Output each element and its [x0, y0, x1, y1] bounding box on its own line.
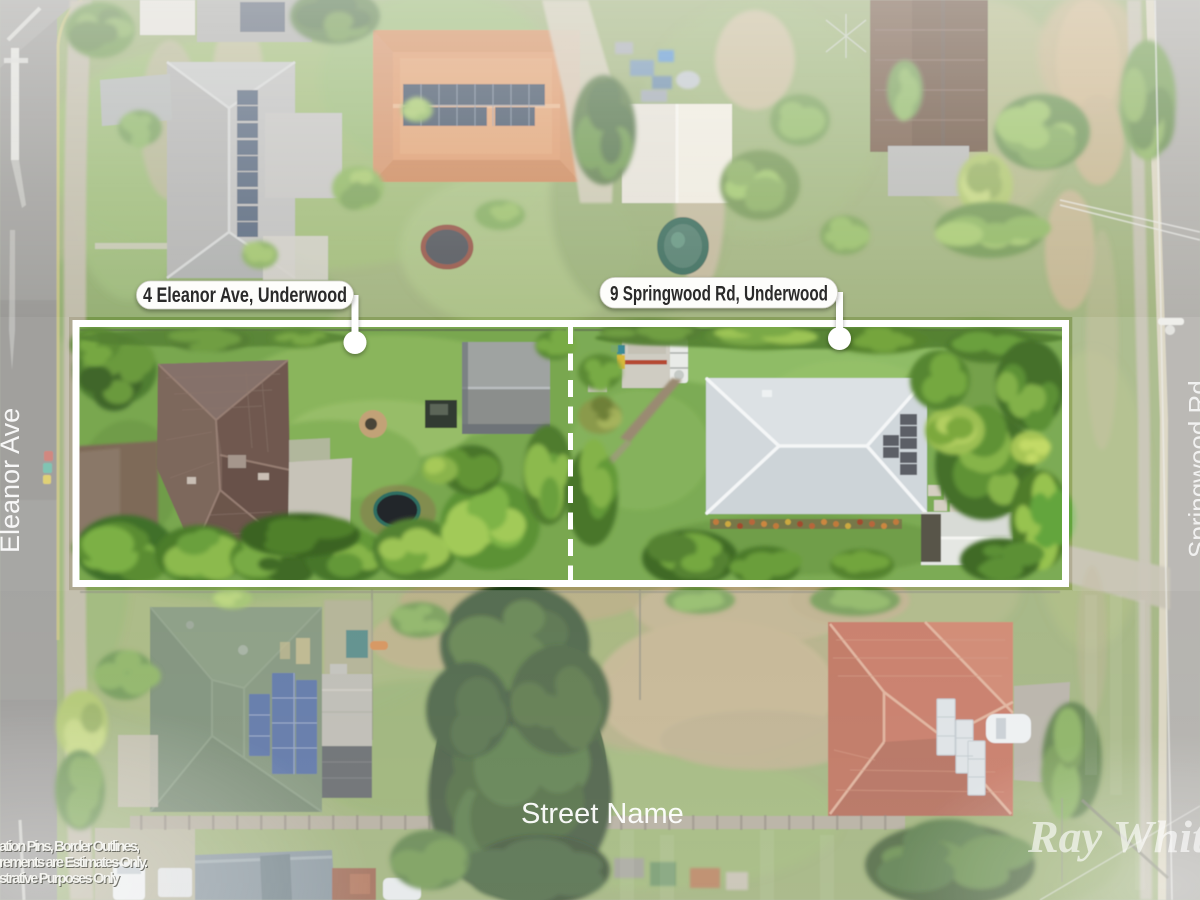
svg-text:Ray White: Ray White [1027, 811, 1200, 862]
svg-text:9 Springwood Rd, Underwood: 9 Springwood Rd, Underwood [610, 283, 828, 306]
svg-text:rements are Estimates Only.: rements are Estimates Only. [0, 855, 148, 871]
svg-text:ation Pins, Border Outlines,: ation Pins, Border Outlines, [0, 839, 140, 855]
svg-text:4 Eleanor Ave, Underwood: 4 Eleanor Ave, Underwood [143, 284, 347, 307]
svg-text:Eleanor Ave: Eleanor Ave [0, 408, 25, 553]
svg-text:strative Purposes Only: strative Purposes Only [0, 871, 120, 887]
svg-text:Springwood Rd: Springwood Rd [1183, 380, 1200, 558]
svg-text:Street Name: Street Name [521, 798, 684, 830]
